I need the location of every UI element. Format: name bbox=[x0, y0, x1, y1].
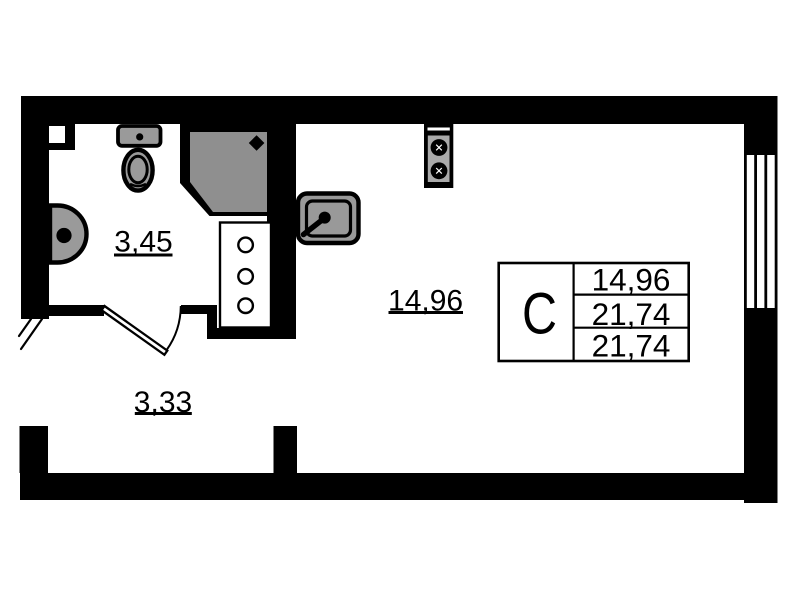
svg-text:С: С bbox=[522, 282, 557, 347]
svg-text:21,74: 21,74 bbox=[592, 296, 671, 332]
svg-text:14,96: 14,96 bbox=[592, 261, 671, 297]
svg-text:21,74: 21,74 bbox=[592, 328, 671, 364]
